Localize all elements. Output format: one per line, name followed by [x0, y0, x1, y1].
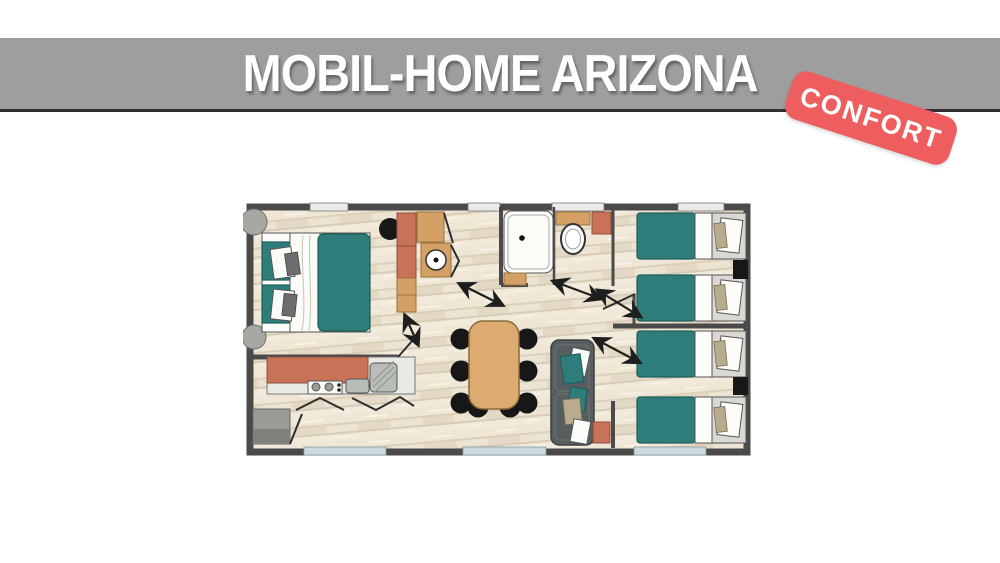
shower: [504, 211, 553, 273]
single-bed-2: [637, 275, 746, 321]
sofa-pillow: [570, 419, 591, 445]
wardrobe: [397, 213, 416, 312]
cushion: [282, 293, 297, 316]
single-bed-4: [637, 397, 746, 443]
window-top-4: [678, 203, 724, 211]
window-bottom-2: [463, 447, 546, 455]
dining-area: [451, 321, 538, 418]
floor-plan: [243, 198, 755, 460]
window-top-1: [310, 203, 348, 211]
dining-table: [469, 321, 519, 409]
shower-drain: [519, 235, 525, 241]
hob: [308, 381, 342, 394]
window-bottom-3: [634, 447, 706, 455]
nightstand-2: [733, 377, 748, 395]
bathroom-cabinet: [592, 212, 611, 234]
cushion: [285, 252, 301, 276]
single-bed-3: [637, 331, 746, 377]
double-bed: [262, 233, 370, 332]
wall-shelf-top: [243, 209, 267, 235]
nightstand-1: [733, 260, 748, 279]
page-title: MOBIL-HOME ARIZONA: [242, 44, 757, 104]
single-bed-1: [637, 213, 746, 259]
sofa-pillow: [560, 354, 584, 385]
window-top-2: [468, 203, 500, 211]
cabinet: [417, 212, 444, 242]
side-cabinet: [593, 422, 610, 443]
window-top-3: [552, 203, 604, 211]
window-bottom-1: [304, 447, 386, 455]
